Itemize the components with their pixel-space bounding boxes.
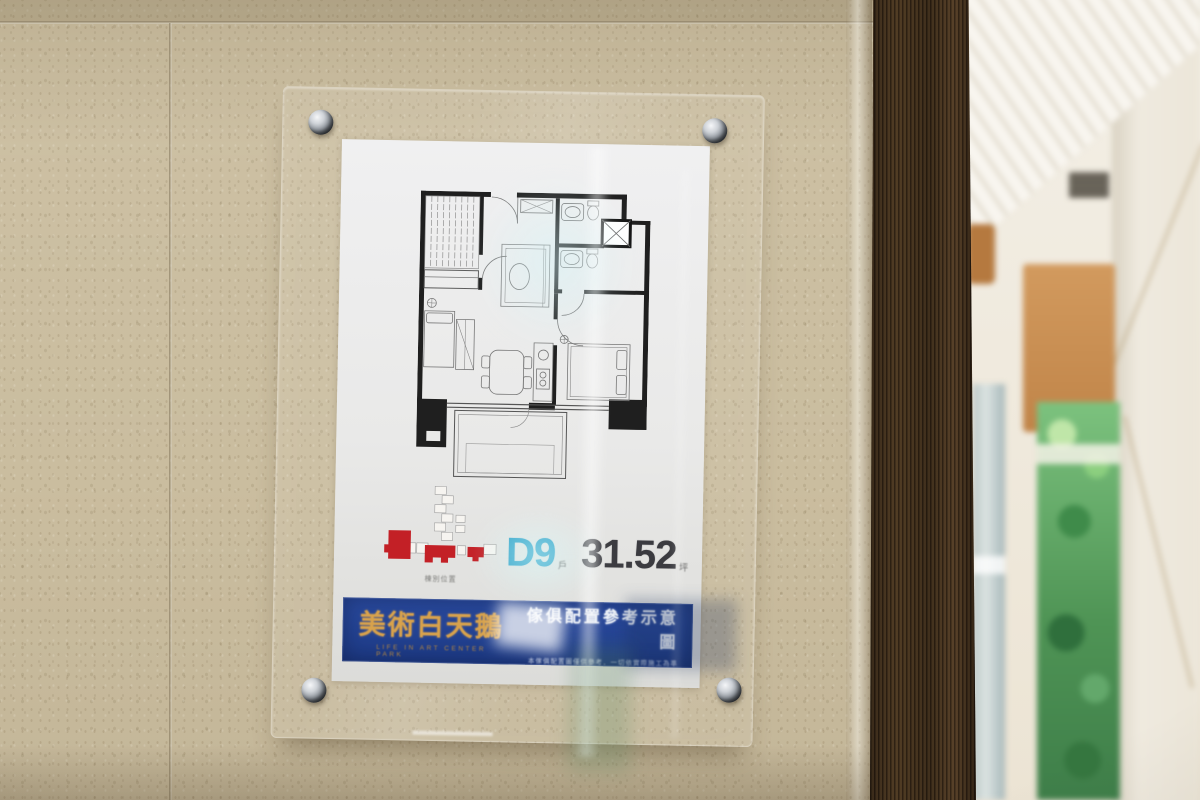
tile-seam-vertical [169,23,172,800]
keyplan-highlighted-buildings [384,530,484,563]
plan-entry [491,197,552,224]
project-banner: 美術白天鵝 LIFE IN ART CENTER PARK 傢俱配置參考示意圖 … [342,597,693,668]
site-key-plan [380,483,504,577]
plan-bathrooms [560,200,599,316]
tile-top-band [0,0,880,21]
brand-block: 美術白天鵝 LIFE IN ART CENTER PARK [358,602,513,660]
keyplan-outlines [404,486,497,556]
wall-bottom-shadow [0,745,880,800]
project-name-english: LIFE IN ART CENTER PARK [376,643,513,660]
project-name: 美術白天鵝 [358,602,513,644]
wood-door-frame [870,0,976,800]
floor-plan-sign: 棟別位置 D9 戶 31.52 坪 美術白天鵝 LIFE IN ART CENT… [270,86,764,747]
air-vent [1069,172,1109,198]
plan-bedroom-right [556,319,631,400]
banner-disclaimer: 本傢俱配置圖僅供參考．一切依實際施工為準 [512,654,678,667]
unit-area-suffix: 坪 [679,561,688,574]
plan-dining [481,342,553,401]
banner-glare-reflection [494,601,565,653]
floor-plan-drawing [415,191,651,485]
wood-beam [967,224,995,284]
glass-panel [973,384,1005,800]
unit-code: D9 [506,530,556,576]
unit-label: D9 戶 31.52 坪 [506,530,689,578]
plan-terrace [446,403,609,479]
key-plan-caption: 棟別位置 [379,573,501,585]
floor-plan-sheet: 棟別位置 D9 戶 31.52 坪 美術白天鵝 LIFE IN ART CENT… [332,139,710,688]
marble-pillar [1112,0,1200,800]
plan-island [501,244,550,307]
plan-hatched-room [424,196,480,289]
background-interior [965,0,1200,800]
blurred-interior [965,0,1200,800]
tile-seam-horizontal [0,21,880,24]
photo-scene: 棟別位置 D9 戶 31.52 坪 美術白天鵝 LIFE IN ART CENT… [0,0,1200,800]
wall-corner-edge [846,0,872,800]
unit-area: 31.52 [581,532,677,579]
plan-duct [602,220,630,247]
white-railing [1037,444,1120,464]
unit-code-suffix: 戶 [558,558,567,571]
plan-bedroom-left [424,255,507,371]
